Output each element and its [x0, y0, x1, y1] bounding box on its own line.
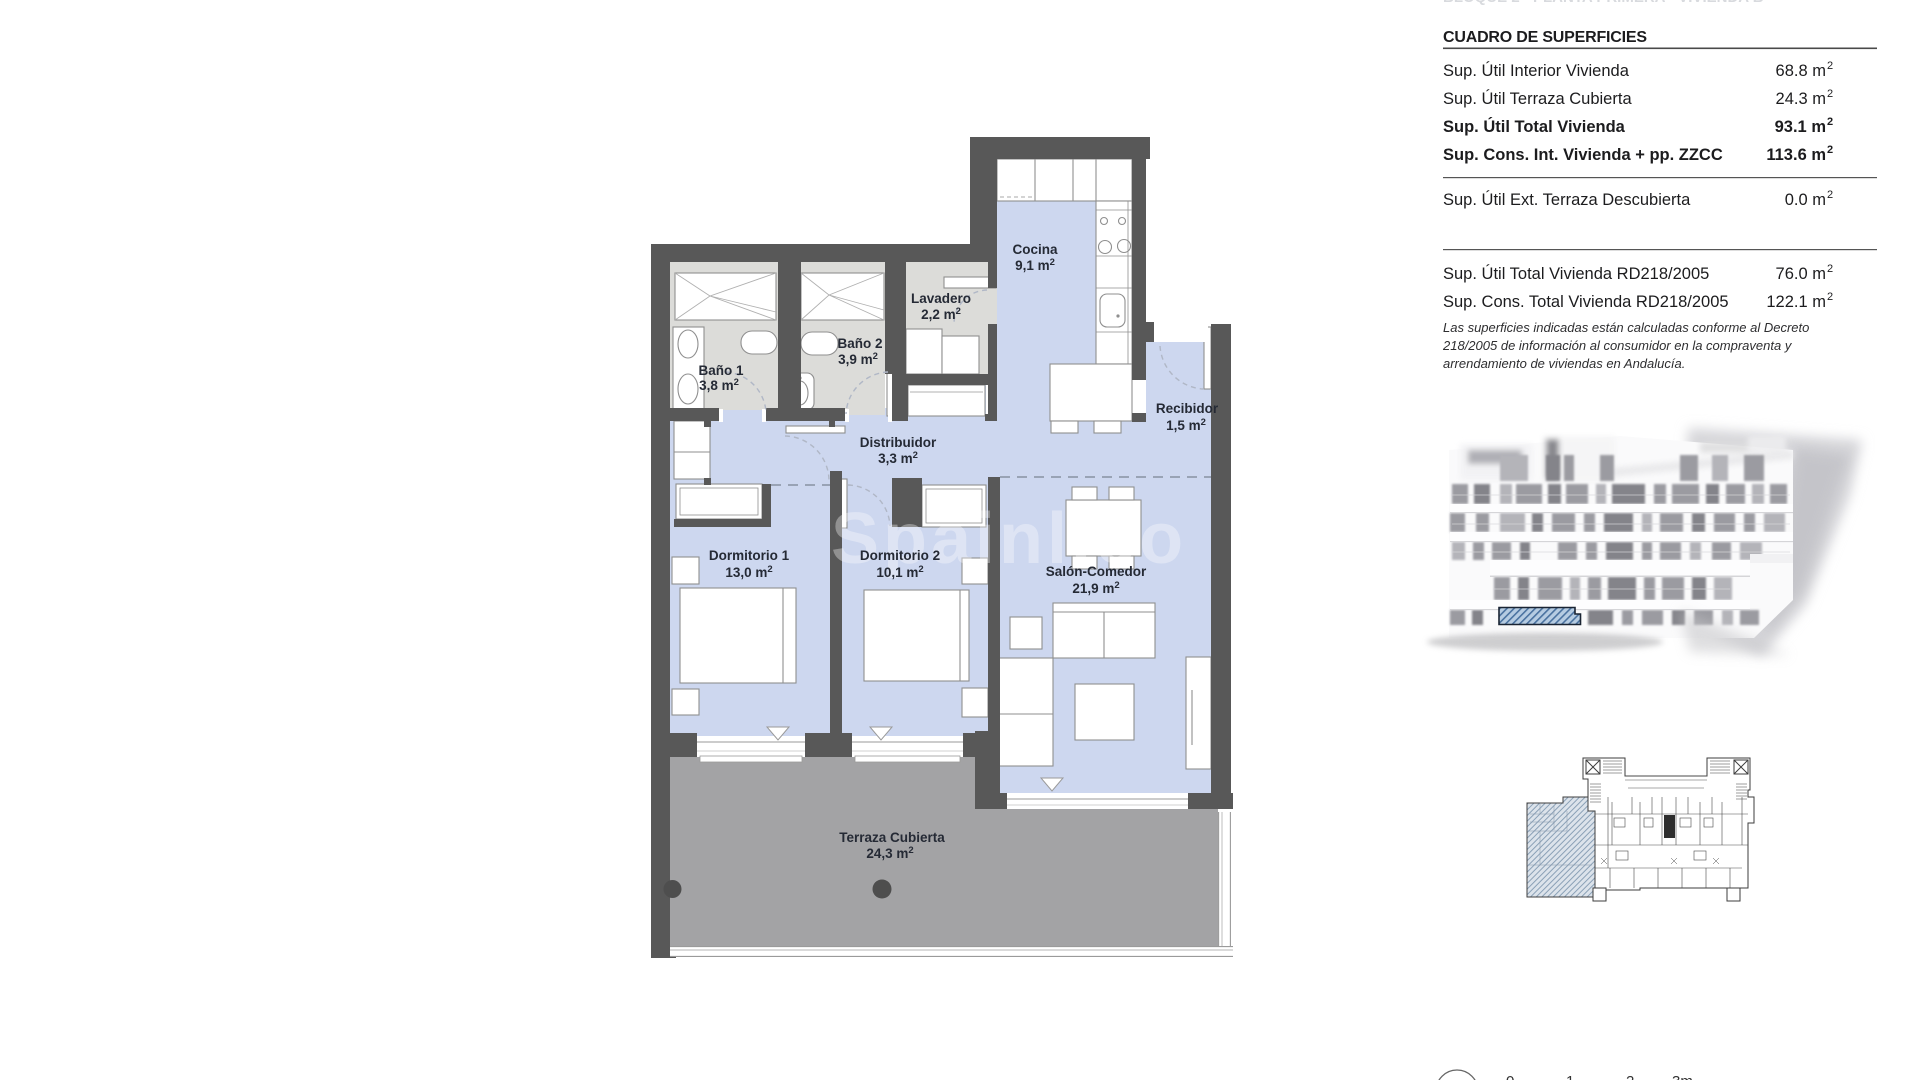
svg-text:122.1 m: 122.1 m — [1766, 293, 1826, 311]
svg-text:1: 1 — [1566, 1073, 1574, 1080]
svg-text:0: 0 — [1506, 1073, 1514, 1080]
svg-text:3m: 3m — [1672, 1073, 1693, 1080]
svg-text:Dormitorio 1: Dormitorio 1 — [709, 548, 790, 563]
svg-text:3,9 m2: 3,9 m2 — [838, 351, 878, 367]
svg-text:CUADRO DE SUPERFICIES: CUADRO DE SUPERFICIES — [1443, 29, 1647, 46]
svg-text:2: 2 — [1827, 88, 1833, 100]
svg-text:Sup. Útil Total Vivienda RD218: Sup. Útil Total Vivienda RD218/2005 — [1443, 264, 1709, 283]
svg-text:2: 2 — [1827, 60, 1833, 72]
svg-text:2: 2 — [1827, 144, 1833, 156]
svg-text:2: 2 — [1827, 291, 1833, 303]
svg-text:Sup. Cons. Int. Vivienda + pp.: Sup. Cons. Int. Vivienda + pp. ZZCC — [1443, 146, 1723, 164]
svg-text:Sup. Útil Total Vivienda: Sup. Útil Total Vivienda — [1443, 117, 1626, 136]
svg-text:Dormitorio 2: Dormitorio 2 — [860, 548, 940, 563]
svg-text:Baño 1: Baño 1 — [698, 363, 744, 378]
svg-text:Recibidor: Recibidor — [1156, 401, 1219, 416]
svg-text:2: 2 — [1827, 116, 1833, 128]
svg-text:Distribuidor: Distribuidor — [860, 435, 937, 450]
svg-text:Lavadero: Lavadero — [911, 291, 971, 306]
svg-text:13,0 m2: 13,0 m2 — [725, 564, 772, 580]
svg-text:3,3 m2: 3,3 m2 — [878, 450, 918, 466]
svg-text:Cocina: Cocina — [1012, 242, 1058, 257]
svg-text:24,3 m2: 24,3 m2 — [866, 845, 913, 861]
svg-text:0.0 m: 0.0 m — [1785, 191, 1826, 209]
svg-text:BLOQUE 2 · PLANTA PRIMERA · VI: BLOQUE 2 · PLANTA PRIMERA · VIVIENDA B — [1443, 0, 1764, 6]
svg-text:113.6 m: 113.6 m — [1766, 146, 1826, 164]
svg-text:Salón-Comedor: Salón-Comedor — [1046, 564, 1147, 579]
svg-text:3,8 m2: 3,8 m2 — [699, 377, 739, 393]
svg-text:68.8 m: 68.8 m — [1776, 62, 1826, 80]
svg-text:Sup. Útil Interior Vivienda: Sup. Útil Interior Vivienda — [1443, 61, 1630, 80]
svg-text:Baño 2: Baño 2 — [837, 336, 882, 351]
svg-text:2: 2 — [1827, 263, 1833, 275]
svg-text:2: 2 — [1827, 189, 1833, 201]
svg-text:10,1 m2: 10,1 m2 — [876, 564, 923, 580]
svg-text:76.0 m: 76.0 m — [1776, 265, 1826, 283]
svg-text:Terraza Cubierta: Terraza Cubierta — [839, 830, 945, 845]
svg-text:Sup. Útil Terraza Cubierta: Sup. Útil Terraza Cubierta — [1443, 89, 1632, 108]
svg-text:1,5 m2: 1,5 m2 — [1166, 417, 1206, 433]
svg-text:2: 2 — [1626, 1073, 1634, 1080]
svg-text:9,1 m2: 9,1 m2 — [1015, 257, 1055, 273]
svg-text:Sup. Útil Ext. Terraza Descubi: Sup. Útil Ext. Terraza Descubierta — [1443, 190, 1691, 209]
svg-text:Las superficies indicadas está: Las superficies indicadas están calculad… — [1443, 320, 1809, 335]
svg-text:arrendamiento de viviendas en: arrendamiento de viviendas en Andalucía. — [1443, 356, 1685, 371]
svg-text:2,2 m2: 2,2 m2 — [921, 306, 961, 322]
svg-text:93.1 m: 93.1 m — [1775, 118, 1826, 136]
svg-text:Sup. Cons. Total Vivienda RD21: Sup. Cons. Total Vivienda RD218/2005 — [1443, 293, 1729, 311]
svg-text:21,9 m2: 21,9 m2 — [1072, 580, 1119, 596]
svg-text:24.3 m: 24.3 m — [1776, 90, 1826, 108]
svg-text:218/2005 de información al con: 218/2005 de información al consumidor en… — [1442, 338, 1793, 353]
